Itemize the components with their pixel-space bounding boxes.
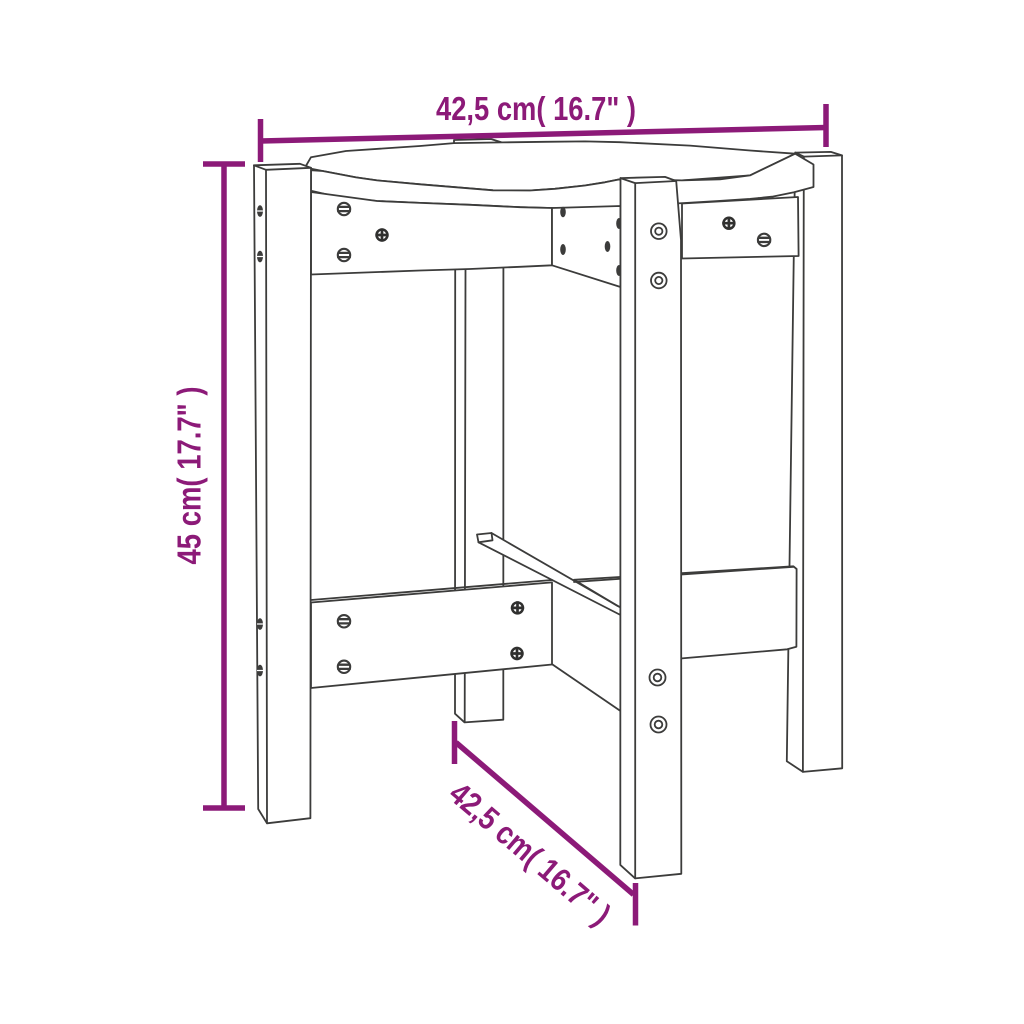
svg-text:45 cm( 17.7" ): 45 cm( 17.7" ): [171, 387, 208, 565]
svg-text:42,5 cm( 16.7" ): 42,5 cm( 16.7" ): [436, 90, 636, 127]
